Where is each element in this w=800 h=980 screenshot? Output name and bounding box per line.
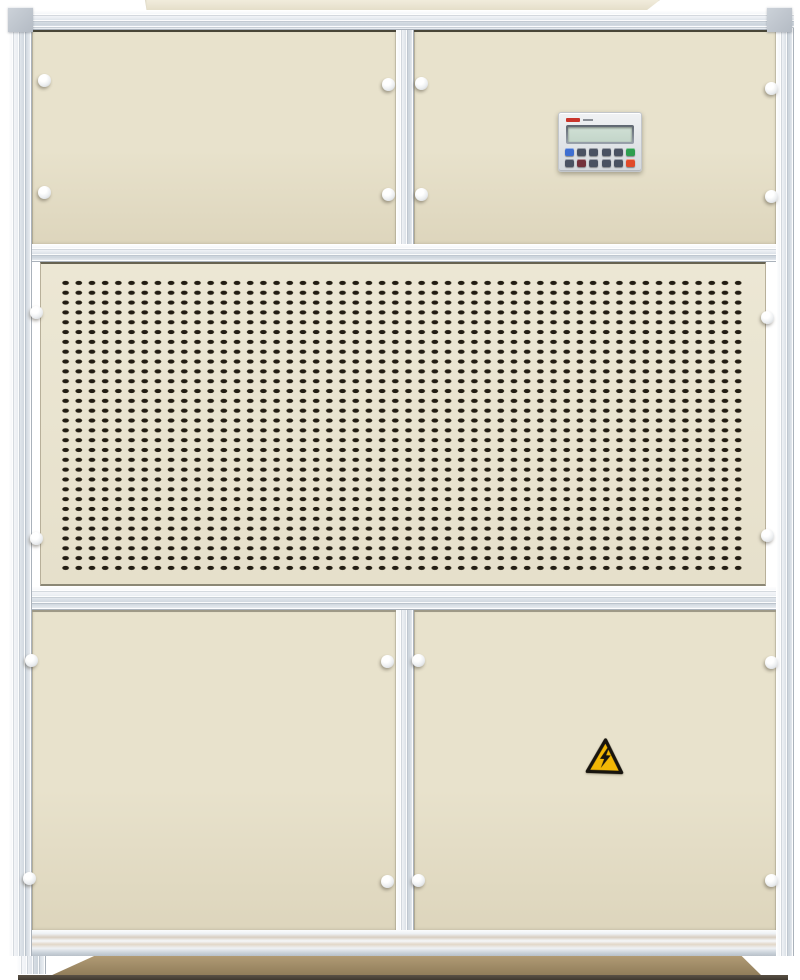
corner-cap-left	[8, 7, 33, 32]
controller-button	[589, 159, 598, 167]
door-bottom-left	[32, 610, 396, 932]
controller-brand-mark	[566, 118, 580, 122]
panel-fastener	[765, 82, 778, 95]
ahu-cabinet	[0, 0, 800, 980]
controller-button	[602, 148, 611, 156]
frame-bottom-rail	[8, 930, 794, 956]
panel-fastener	[412, 654, 425, 667]
controller-lcd-frame	[566, 125, 634, 144]
panel-fastener	[25, 654, 38, 667]
controller-lcd-screen	[568, 127, 632, 142]
base-shadow-line	[18, 975, 788, 980]
controller-button	[577, 159, 586, 167]
panel-fastener	[381, 655, 394, 668]
panel-fastener	[38, 74, 51, 87]
controller-button-row-1	[565, 148, 635, 156]
mullion-top	[396, 30, 414, 244]
controller-button	[602, 159, 611, 167]
grille-perforation	[59, 278, 745, 573]
panel-fastener	[30, 306, 43, 319]
controller-button	[565, 148, 574, 156]
panel-fastener	[761, 529, 774, 542]
grille-panel	[40, 262, 766, 586]
panel-fastener	[382, 188, 395, 201]
controller-button	[614, 148, 623, 156]
controller-button	[589, 148, 598, 156]
frame-left-rail	[8, 28, 32, 956]
high-voltage-warning-icon	[585, 735, 624, 776]
panel-fastener	[412, 874, 425, 887]
panel-fastener	[381, 875, 394, 888]
controller-button	[626, 148, 635, 156]
controller-button-row-2	[565, 159, 635, 167]
controller-button	[565, 159, 574, 167]
panel-fastener	[765, 656, 778, 669]
panel-fastener	[415, 188, 428, 201]
controller-panel	[558, 112, 642, 172]
frame-right-rail	[776, 28, 794, 956]
controller-brand-submark	[583, 119, 593, 121]
frame-mid-rail-lower	[32, 586, 776, 610]
controller-button	[626, 159, 635, 167]
base-plinth	[50, 955, 762, 976]
panel-fastener	[765, 190, 778, 203]
controller-button	[577, 148, 586, 156]
panel-fastener	[761, 311, 774, 324]
panel-fastener	[415, 77, 428, 90]
panel-fastener	[23, 872, 36, 885]
panel-fastener	[382, 78, 395, 91]
controller-button	[614, 159, 623, 167]
panel-top-left	[32, 30, 396, 246]
panel-fastener	[765, 874, 778, 887]
panel-fastener	[38, 186, 51, 199]
frame-mid-rail-upper	[32, 244, 776, 262]
panel-fastener	[30, 532, 43, 545]
corner-cap-right	[767, 7, 792, 32]
frame-top-rail	[8, 10, 794, 30]
